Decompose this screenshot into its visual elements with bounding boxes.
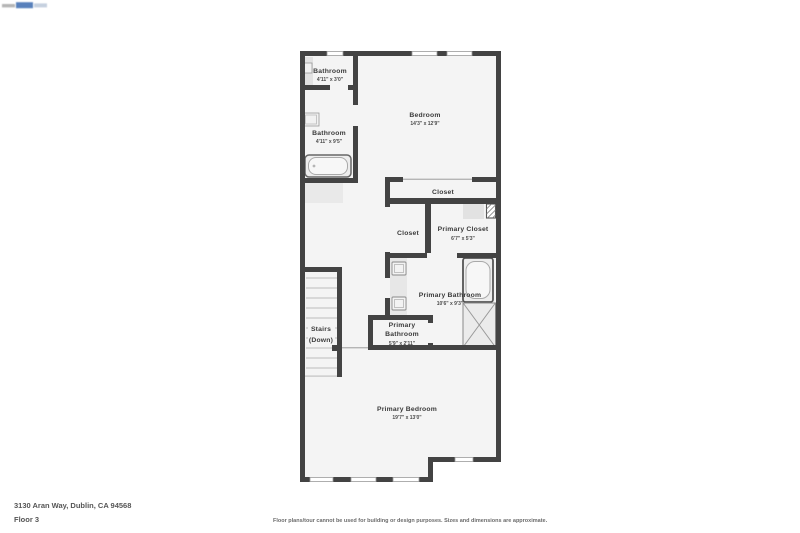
shower-icon — [463, 303, 496, 347]
room-label-bedroom-closet: Closet — [432, 189, 455, 196]
window — [393, 477, 419, 481]
disclaimer-text: Floor plans/tour cannot be used for buil… — [273, 518, 547, 524]
logo-blob-blue — [16, 2, 33, 8]
brand-logo-icon — [2, 1, 48, 10]
window — [412, 51, 437, 55]
hall-builtin — [303, 183, 343, 203]
floor-plan-canvas: Bathroom 4'11" x 3'0" Bathroom 4'11" x 9… — [295, 45, 510, 490]
room-label-bedroom: Bedroom — [409, 112, 440, 119]
room-label-primary-wc-2: Bathroom — [385, 331, 419, 338]
room-label-stairs-2: (Down) — [309, 337, 333, 344]
window — [447, 51, 472, 55]
logo-blob-gray — [2, 4, 15, 7]
property-address: 3130 Aran Way, Dublin, CA 94568 — [14, 501, 131, 510]
room-dims-primary-closet: 6'7" x 5'3" — [451, 236, 475, 242]
window — [310, 477, 333, 481]
room-label-stairs-1: Stairs — [311, 326, 331, 333]
room-label-bathroom-mid: Bathroom — [312, 130, 346, 137]
dresser — [463, 204, 484, 219]
room-label-bathroom-top: Bathroom — [313, 68, 347, 75]
room-dims-primary-bedroom: 19'7" x 13'0" — [392, 415, 422, 421]
closet-opening-line — [403, 179, 472, 180]
sink-icon — [304, 63, 312, 73]
room-label-primary-bathroom: Primary Bathroom — [419, 292, 482, 299]
hall-opening-line — [342, 347, 368, 348]
floor-plan-page: Bathroom 4'11" x 3'0" Bathroom 4'11" x 9… — [0, 0, 800, 533]
room-label-primary-wc-1: Primary — [389, 322, 416, 329]
room-dims-bathroom-top: 4'11" x 3'0" — [317, 77, 344, 83]
room-label-hall-closet: Closet — [397, 230, 420, 237]
window — [455, 457, 473, 461]
window — [351, 477, 376, 481]
room-dims-primary-wc: 5'9" x 2'11" — [389, 341, 416, 347]
room-dims-primary-bathroom: 10'6" x 9'3" — [437, 301, 464, 307]
room-label-primary-bedroom: Primary Bedroom — [377, 406, 437, 413]
water-heater-icon — [487, 204, 496, 218]
faucet-icon — [313, 165, 316, 168]
window — [327, 51, 343, 55]
stairs-edge-line — [305, 376, 337, 377]
floor-label: Floor 3 — [14, 515, 39, 524]
room-label-primary-closet: Primary Closet — [438, 226, 489, 233]
room-dims-bedroom: 14'3" x 12'9" — [410, 121, 440, 127]
logo-blob-light — [34, 3, 47, 7]
room-dims-bathroom-mid: 4'11" x 9'5" — [316, 139, 343, 145]
